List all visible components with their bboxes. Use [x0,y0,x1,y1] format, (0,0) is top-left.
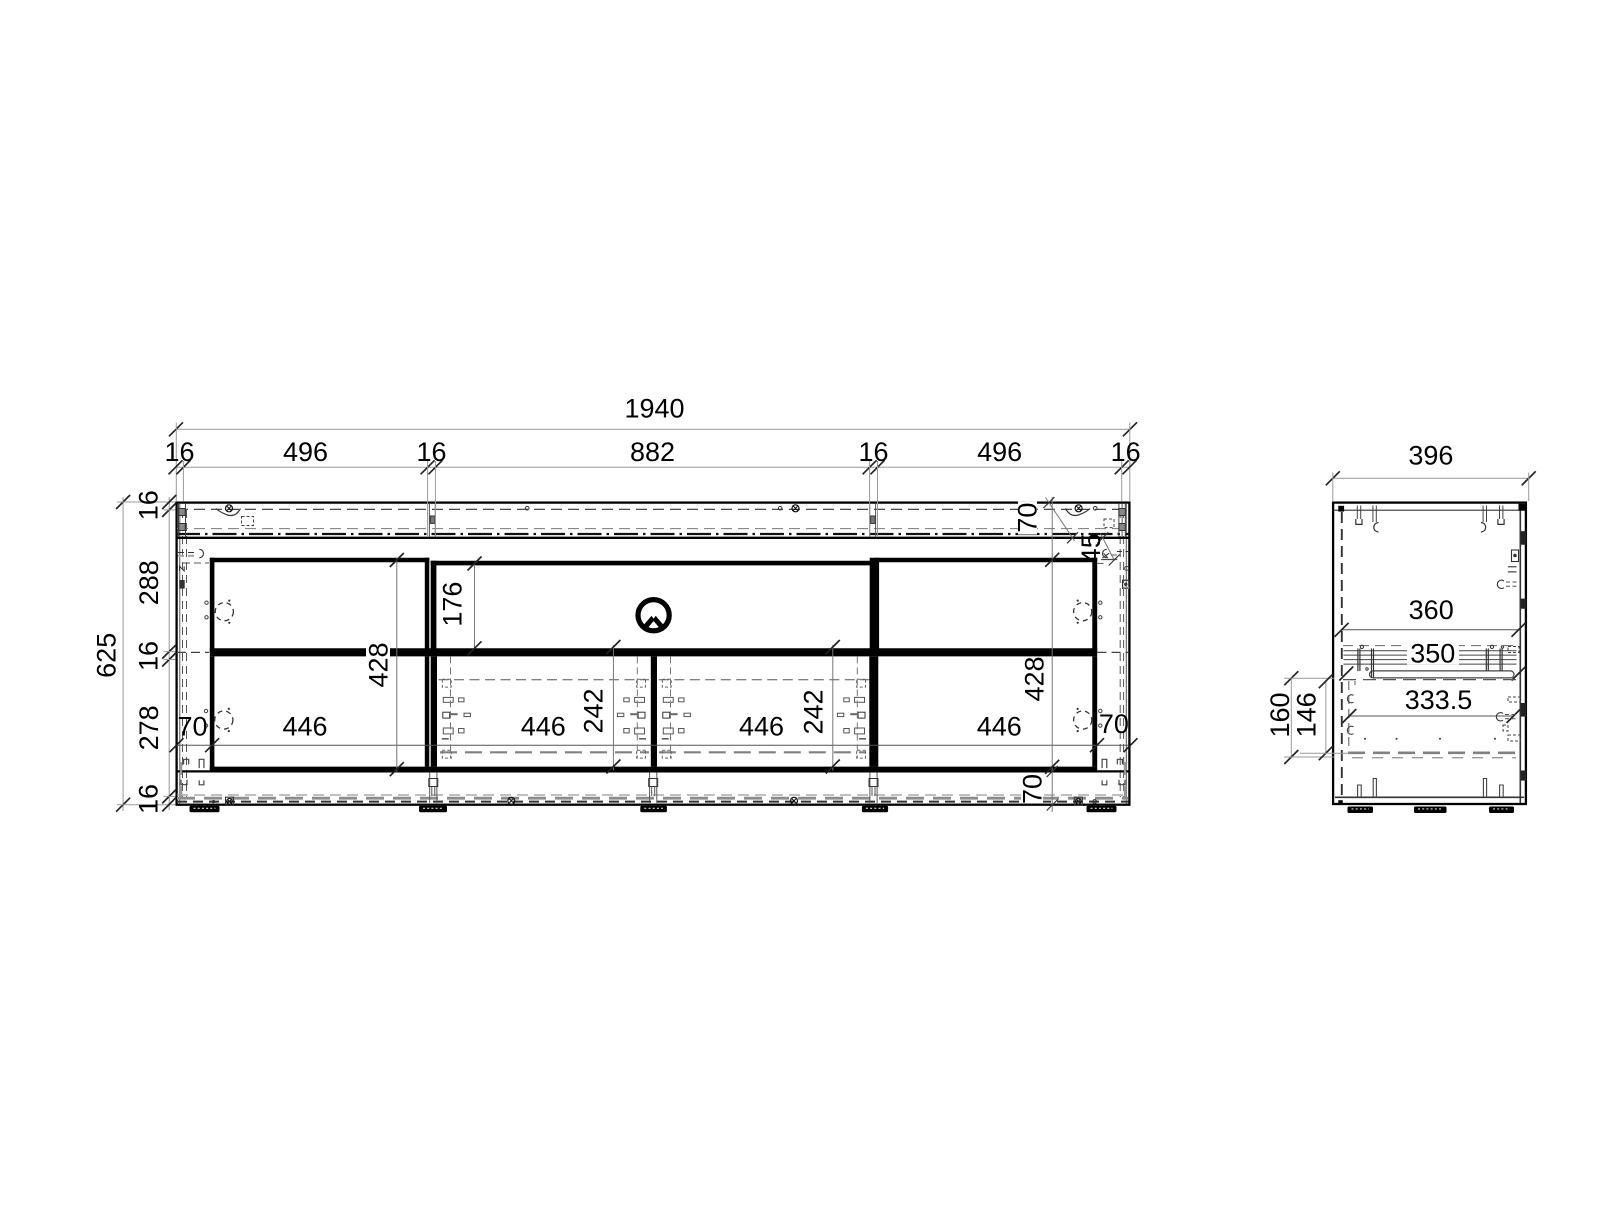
svg-text:16: 16 [133,641,163,671]
svg-text:496: 496 [283,437,328,467]
svg-text:176: 176 [438,582,468,627]
svg-text:882: 882 [630,437,675,467]
svg-text:428: 428 [363,642,393,687]
svg-text:350: 350 [1410,639,1455,669]
svg-text:70: 70 [177,712,207,742]
svg-text:16: 16 [858,437,888,467]
svg-text:16: 16 [1111,437,1141,467]
svg-text:16: 16 [133,784,163,814]
svg-text:1940: 1940 [624,394,684,424]
svg-text:70: 70 [1013,503,1043,533]
svg-text:625: 625 [91,633,121,678]
svg-text:16: 16 [164,437,194,467]
svg-text:45: 45 [1076,533,1106,563]
svg-text:70: 70 [1018,774,1048,804]
svg-text:333.5: 333.5 [1405,685,1473,715]
svg-text:446: 446 [282,711,327,741]
svg-text:278: 278 [134,705,164,750]
svg-text:288: 288 [134,560,164,605]
svg-text:446: 446 [739,711,784,741]
svg-text:242: 242 [798,689,828,734]
svg-text:16: 16 [133,490,163,520]
svg-text:446: 446 [521,711,566,741]
svg-text:242: 242 [579,688,609,733]
svg-text:146: 146 [1291,692,1321,737]
svg-text:496: 496 [977,437,1022,467]
svg-text:16: 16 [416,437,446,467]
svg-text:446: 446 [977,711,1022,741]
svg-text:360: 360 [1409,595,1454,625]
svg-text:428: 428 [1020,656,1050,701]
svg-text:396: 396 [1408,441,1453,471]
svg-text:160: 160 [1265,692,1295,737]
svg-text:70: 70 [1099,709,1129,739]
